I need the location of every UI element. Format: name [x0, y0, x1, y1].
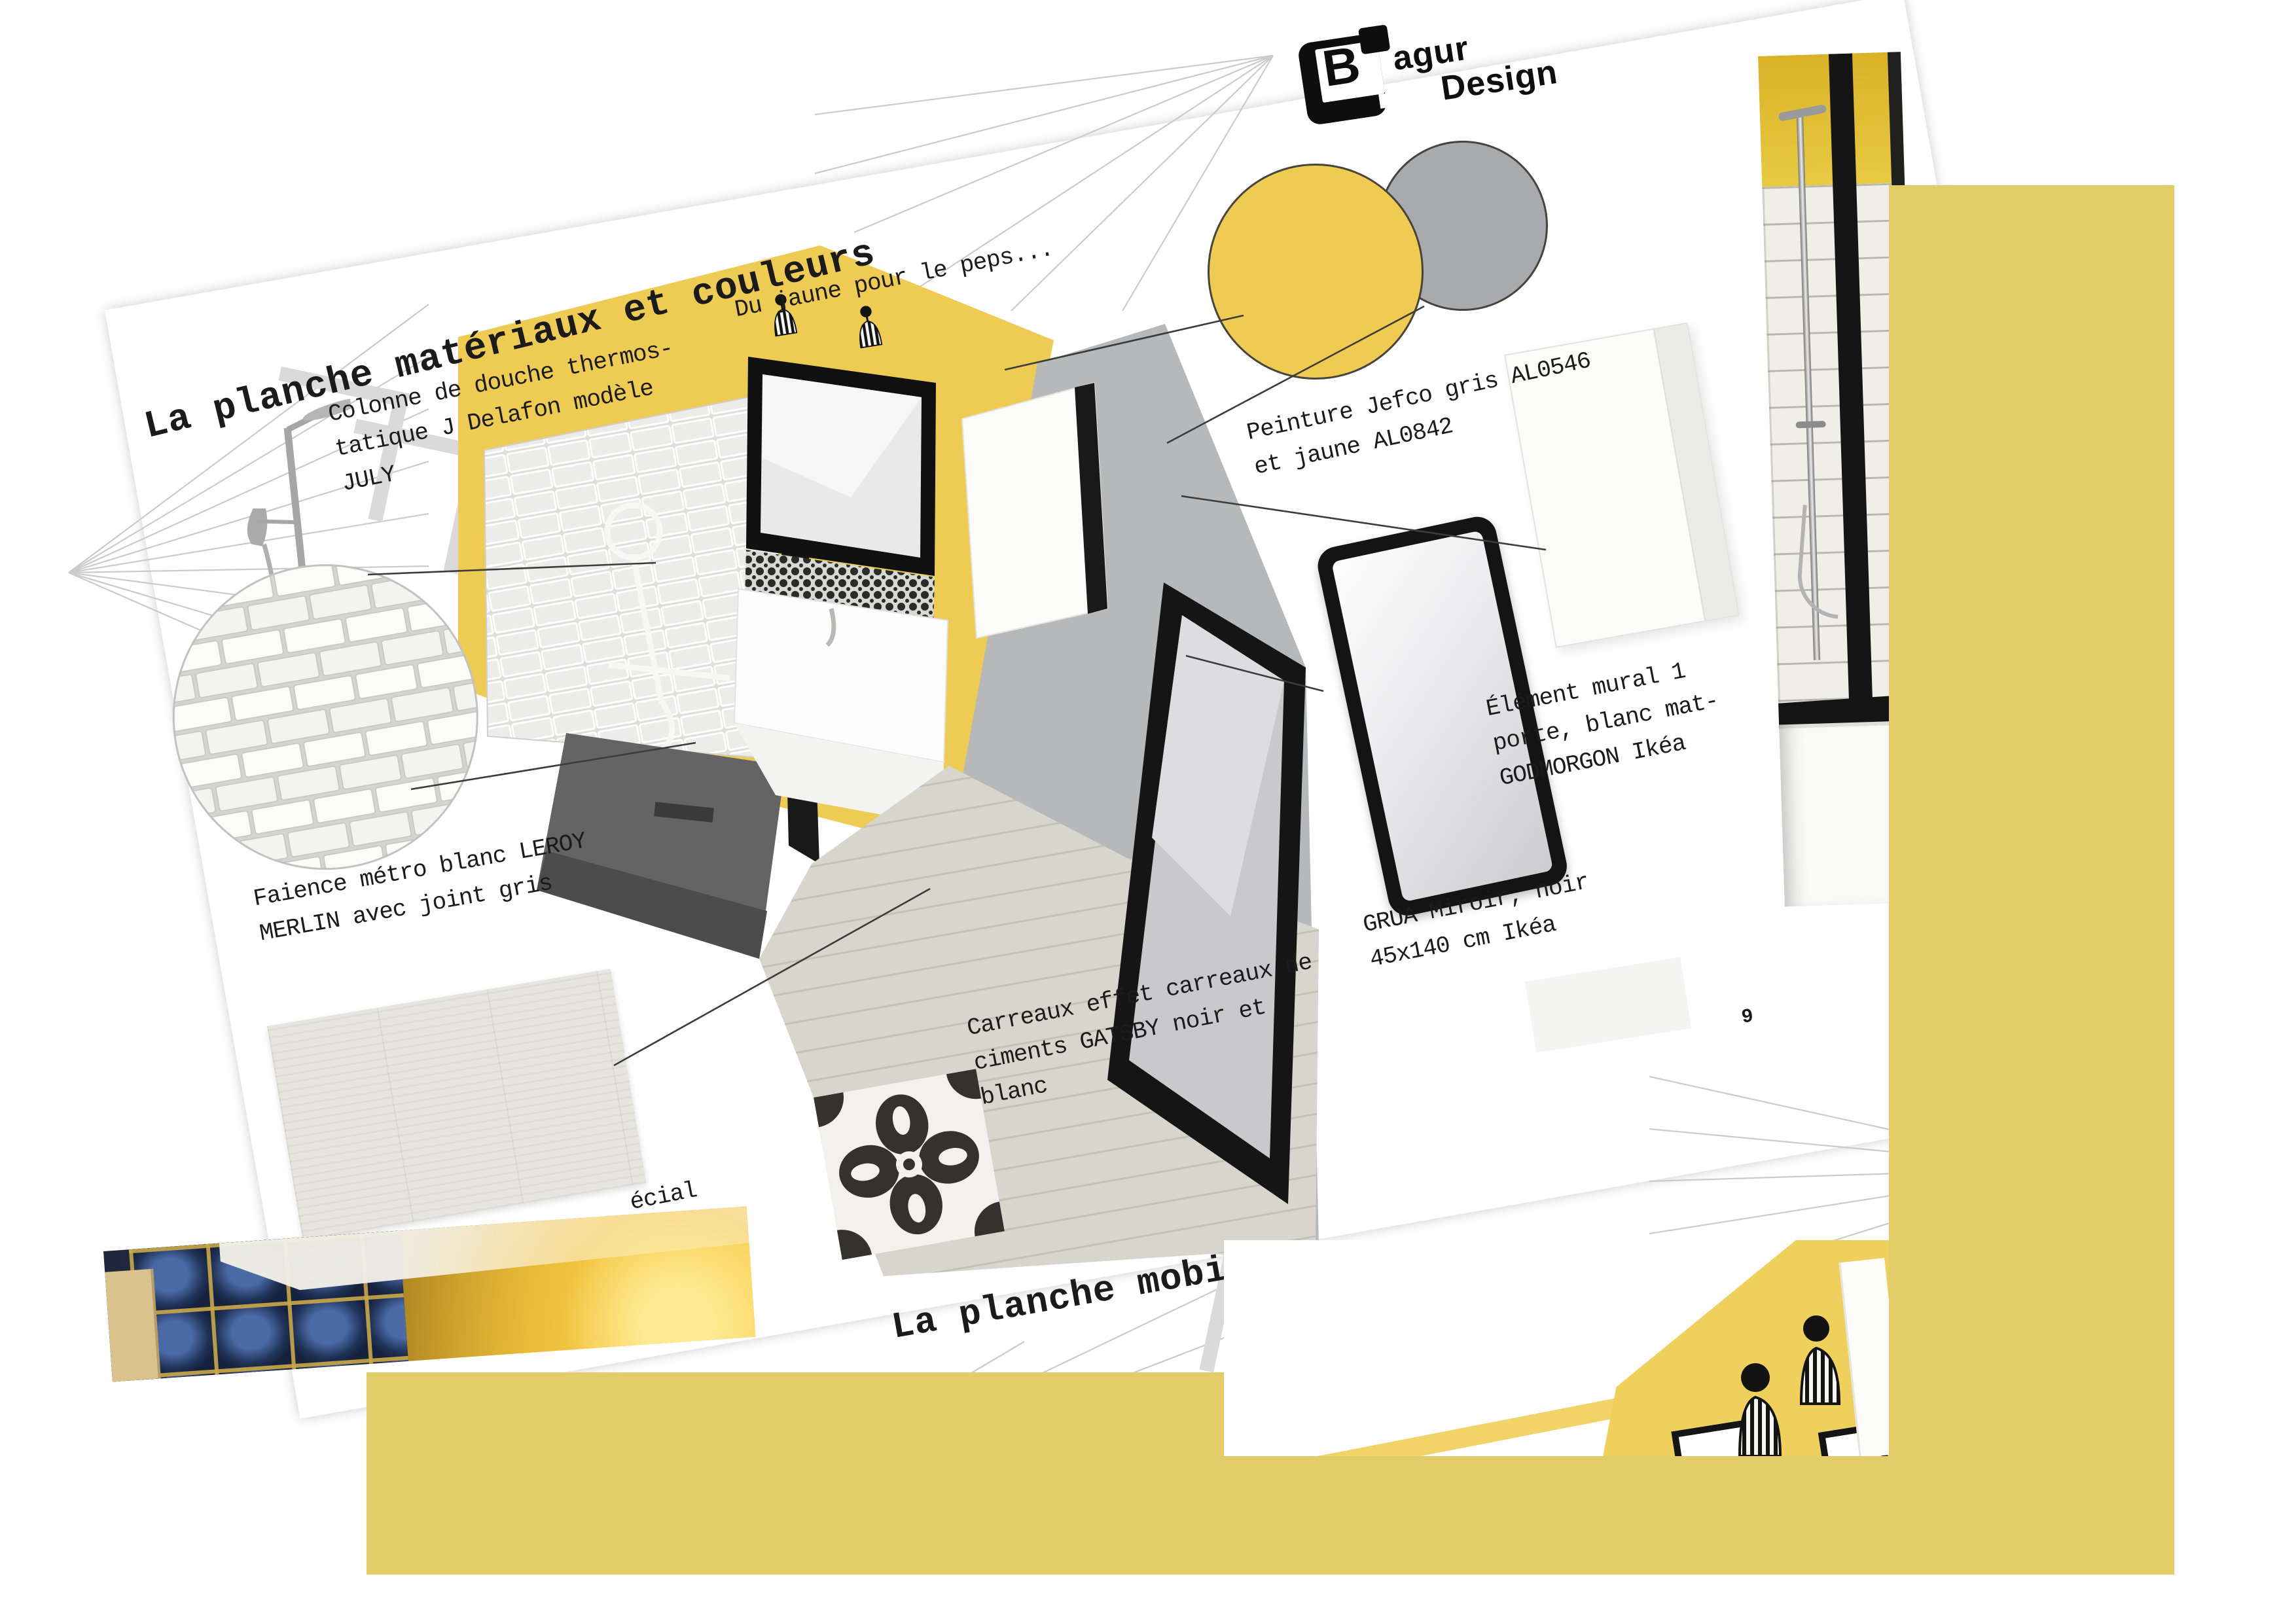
yellow-color-block-right	[1889, 185, 2174, 1575]
photo-cabinet	[105, 1269, 160, 1382]
canvas: La planche matériaux et couleurs Du jaun…	[0, 0, 2296, 1623]
wall-lamp-icon	[1801, 1315, 1839, 1404]
photo-shower-valve	[1796, 421, 1826, 428]
preview-lamps	[1224, 1240, 1889, 1456]
wall-lamp-icon	[1740, 1363, 1780, 1456]
next-page-preview	[1224, 1240, 1889, 1456]
logo-letter-b: B	[1319, 38, 1363, 94]
